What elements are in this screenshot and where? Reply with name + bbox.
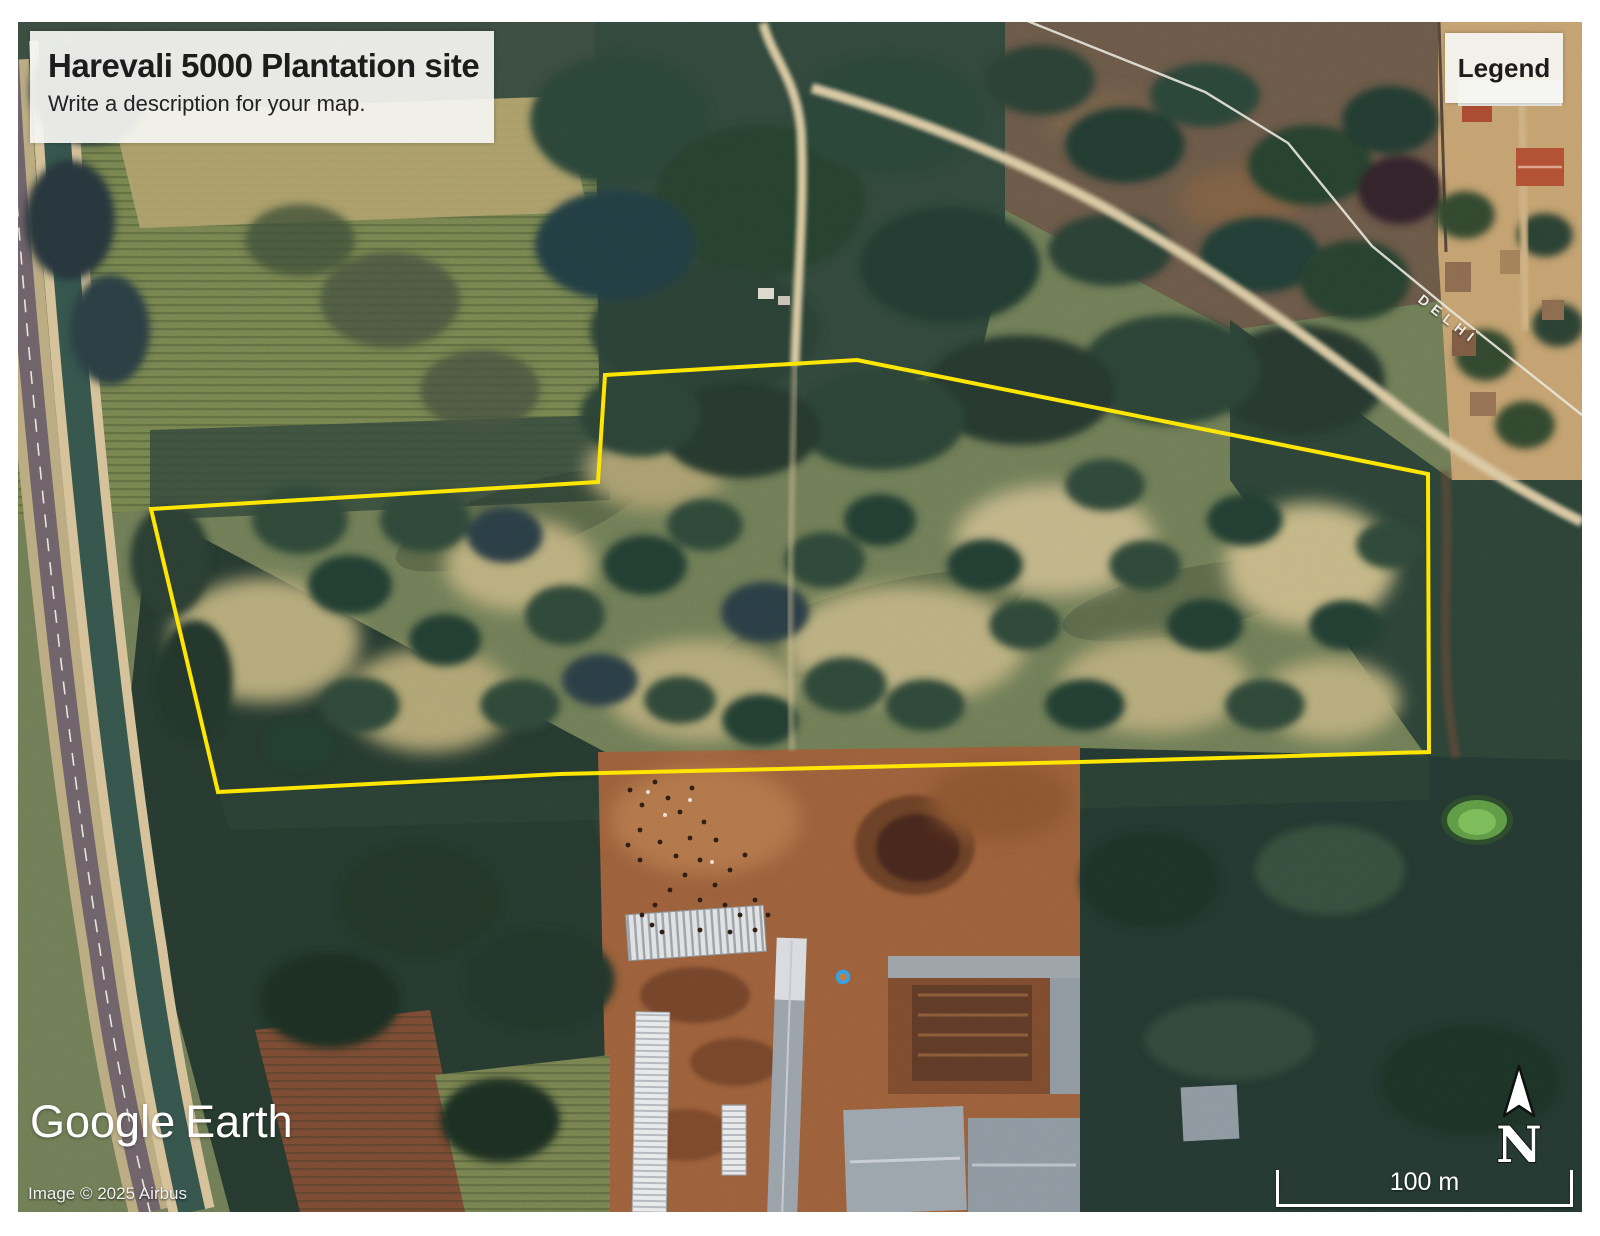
- satellite-map-canvas[interactable]: [18, 22, 1582, 1212]
- map-title-card[interactable]: Harevali 5000 Plantation site Write a de…: [30, 31, 494, 143]
- terrain-layer: [18, 22, 1582, 1212]
- north-arrow: N: [1486, 1062, 1552, 1170]
- google-earth-brand: Google: [30, 1096, 175, 1147]
- scale-bar: 100 m: [1276, 1170, 1573, 1207]
- legend-card[interactable]: Legend: [1445, 33, 1563, 103]
- north-arrow-letter: N: [1496, 1115, 1542, 1170]
- imagery-attribution: Image © 2025 Airbus: [28, 1184, 187, 1204]
- scale-bar-label: 100 m: [1279, 1168, 1570, 1197]
- legend-label: Legend: [1458, 53, 1550, 84]
- google-earth-watermark: GoogleEarth: [30, 1096, 293, 1148]
- map-frame: [18, 22, 1582, 1212]
- map-description-placeholder[interactable]: Write a description for your map.: [48, 91, 494, 117]
- map-title[interactable]: Harevali 5000 Plantation site: [48, 47, 494, 85]
- map-export-page: { "map": { "title_card": { "title": "Har…: [0, 0, 1600, 1236]
- google-earth-product: Earth: [185, 1096, 293, 1147]
- north-arrow-icon: [1504, 1066, 1534, 1116]
